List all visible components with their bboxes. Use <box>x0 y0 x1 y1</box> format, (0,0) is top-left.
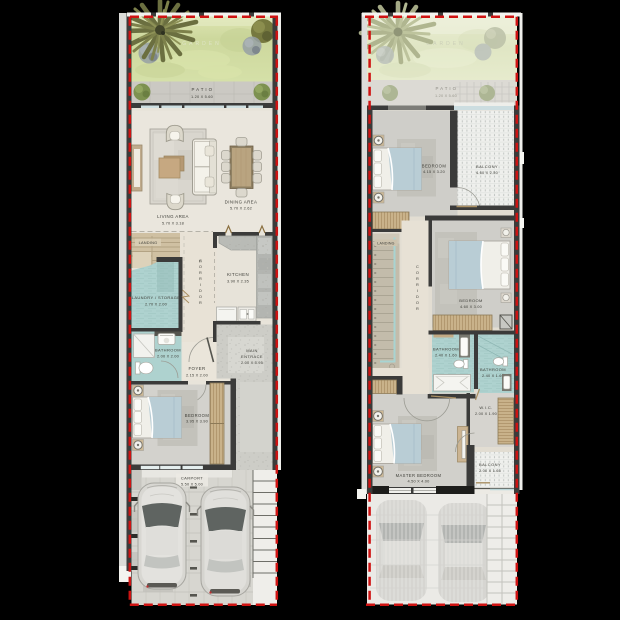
svg-text:2.15 X 2.00: 2.15 X 2.00 <box>186 373 209 378</box>
svg-text:4.15 X 3.20: 4.15 X 3.20 <box>423 169 446 174</box>
svg-text:BALCONY: BALCONY <box>479 462 501 467</box>
svg-text:I: I <box>200 282 201 287</box>
svg-text:4.50 X 4.00: 4.50 X 4.00 <box>407 479 430 484</box>
svg-text:LANDING: LANDING <box>139 240 158 245</box>
svg-text:O: O <box>416 270 419 275</box>
svg-text:2.40 X 1.60: 2.40 X 1.60 <box>435 353 458 358</box>
svg-text:1.20 X 5.60: 1.20 X 5.60 <box>191 94 214 99</box>
svg-text:2.00 X 1.65: 2.00 X 1.65 <box>479 468 501 473</box>
svg-text:I: I <box>417 288 418 293</box>
svg-text:R: R <box>199 300 202 305</box>
svg-text:5.50 X 5.00: 5.50 X 5.00 <box>181 482 204 487</box>
svg-text:C: C <box>416 264 419 269</box>
svg-text:MASTER BEDROOM: MASTER BEDROOM <box>396 473 442 478</box>
svg-text:R: R <box>199 276 202 281</box>
svg-text:BEDROOM: BEDROOM <box>422 164 447 169</box>
svg-text:1.20 X 5.60: 1.20 X 5.60 <box>435 93 458 98</box>
svg-text:2.70 X 2.00: 2.70 X 2.00 <box>145 302 168 307</box>
svg-text:W.I.C.: W.I.C. <box>479 405 492 410</box>
svg-text:4.60 X 2.50: 4.60 X 2.50 <box>476 170 499 175</box>
svg-text:O: O <box>199 294 202 299</box>
svg-text:2.00 X 5.95: 2.00 X 5.95 <box>241 360 263 365</box>
svg-text:KITCHEN: KITCHEN <box>227 272 249 277</box>
svg-text:O: O <box>416 300 419 305</box>
svg-text:BATHROOM: BATHROOM <box>155 348 181 353</box>
svg-text:BATHROOM: BATHROOM <box>433 347 459 352</box>
svg-text:D: D <box>199 288 202 293</box>
svg-text:3.95 X 3.90: 3.95 X 3.90 <box>186 419 209 424</box>
svg-text:R: R <box>416 276 419 281</box>
svg-text:CARPORT: CARPORT <box>181 476 203 481</box>
svg-text:5.70 X 2.62: 5.70 X 2.62 <box>230 206 252 211</box>
svg-text:2.00 X 2.00: 2.00 X 2.00 <box>157 354 180 359</box>
svg-text:2.40 X 1.60: 2.40 X 1.60 <box>482 373 505 378</box>
svg-text:2.00 X 1.90: 2.00 X 1.90 <box>475 411 498 416</box>
svg-text:D: D <box>416 294 419 299</box>
svg-text:5.70 X 3.18: 5.70 X 3.18 <box>162 221 184 226</box>
svg-text:MAIN: MAIN <box>246 348 258 353</box>
svg-text:R: R <box>416 282 419 287</box>
svg-text:LAUNDRY / STORAGE: LAUNDRY / STORAGE <box>132 295 181 300</box>
svg-text:FOYER: FOYER <box>188 366 205 371</box>
svg-text:4.60 X 3.00: 4.60 X 3.00 <box>460 304 483 309</box>
svg-text:LIVING AREA: LIVING AREA <box>157 214 189 219</box>
svg-text:3.90 X 2.35: 3.90 X 2.35 <box>227 279 249 284</box>
svg-text:LANDING: LANDING <box>377 242 394 246</box>
svg-text:BEDROOM: BEDROOM <box>459 298 482 303</box>
svg-text:P A T I O: P A T I O <box>436 86 457 91</box>
svg-text:ENTRACE: ENTRACE <box>241 354 263 359</box>
svg-text:P A T I O: P A T I O <box>192 87 213 92</box>
svg-text:BEDROOM: BEDROOM <box>185 413 210 418</box>
svg-text:R: R <box>199 270 202 275</box>
svg-text:R: R <box>416 306 419 311</box>
svg-text:BALCONY: BALCONY <box>476 164 498 169</box>
svg-text:C: C <box>199 258 202 263</box>
svg-text:O: O <box>199 264 202 269</box>
svg-text:GARDEN: GARDEN <box>182 41 221 47</box>
svg-text:DINING AREA: DINING AREA <box>225 200 258 205</box>
svg-text:BATHROOM: BATHROOM <box>480 367 506 372</box>
